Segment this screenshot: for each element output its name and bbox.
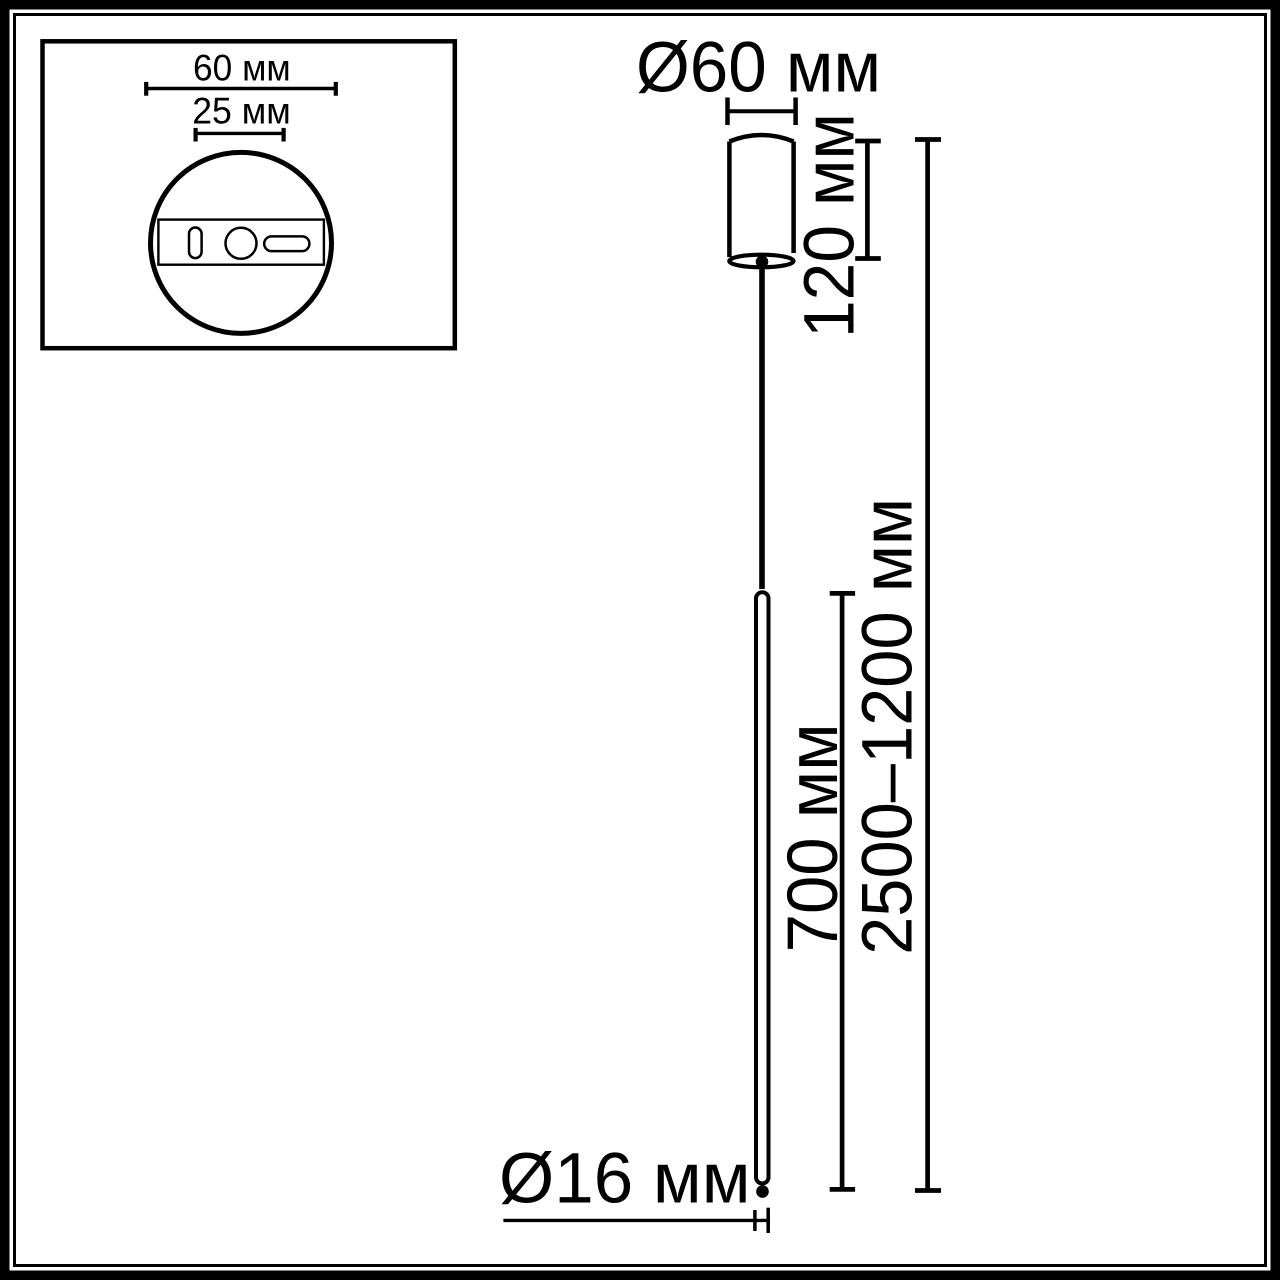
svg-text:60 мм: 60 мм	[193, 47, 291, 88]
svg-text:Ø60 мм: Ø60 мм	[636, 28, 881, 107]
svg-text:700 мм: 700 мм	[774, 723, 853, 952]
svg-text:Ø16 мм: Ø16 мм	[499, 1140, 751, 1219]
svg-text:2500–1200 мм: 2500–1200 мм	[849, 498, 928, 955]
svg-text:120 мм: 120 мм	[791, 113, 870, 338]
svg-text:25 мм: 25 мм	[192, 91, 291, 132]
